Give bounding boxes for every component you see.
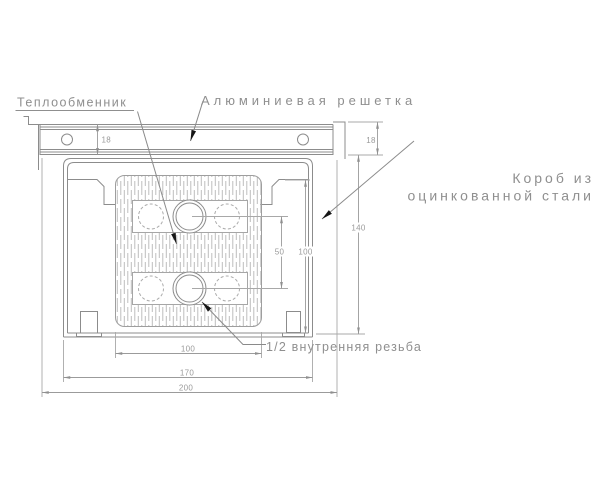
annotation-labels: Теплообменник Алюминиевая решетка Короб … xyxy=(16,93,595,354)
box-ledge-right xyxy=(260,180,309,205)
heat-exchanger-core xyxy=(116,176,262,327)
box-ledge-left xyxy=(68,180,117,205)
aluminum-grille-profile xyxy=(24,117,346,171)
dim-text-140: 140 xyxy=(351,224,365,233)
dim-text-18-right: 18 xyxy=(366,136,376,145)
dim-text-18-left: 18 xyxy=(102,136,112,145)
label-heat-exchanger: Теплообменник xyxy=(17,96,127,110)
technical-drawing: 18 18 140 100 50 100 170 200 Теплообменн… xyxy=(0,0,600,480)
label-steel-box-line1: Короб из xyxy=(512,170,594,186)
label-grille: Алюминиевая решетка xyxy=(201,93,416,108)
dim-text-50: 50 xyxy=(275,248,285,257)
grille-screw-hole-left xyxy=(62,134,73,145)
grille-hook-right xyxy=(333,122,345,159)
box-foot-right xyxy=(287,312,301,333)
dim-text-100-inner: 100 xyxy=(298,248,312,257)
dim-text-100-bottom: 100 xyxy=(181,345,195,354)
box-foot-left-base xyxy=(77,333,102,337)
drawing-canvas: 18 18 140 100 50 100 170 200 Теплообменн… xyxy=(0,0,600,480)
label-steel-box-line2: оцинкованной стали xyxy=(408,188,594,204)
dim-text-170: 170 xyxy=(180,369,194,378)
leader-steel-box xyxy=(322,141,414,219)
box-foot-left xyxy=(81,312,98,334)
box-foot-right-base xyxy=(283,333,305,337)
label-thread: 1/2 внутренняя резьба xyxy=(266,340,422,354)
grille-hook-left xyxy=(24,117,41,125)
grille-screw-hole-right xyxy=(298,134,309,145)
dim-text-200: 200 xyxy=(179,384,193,393)
